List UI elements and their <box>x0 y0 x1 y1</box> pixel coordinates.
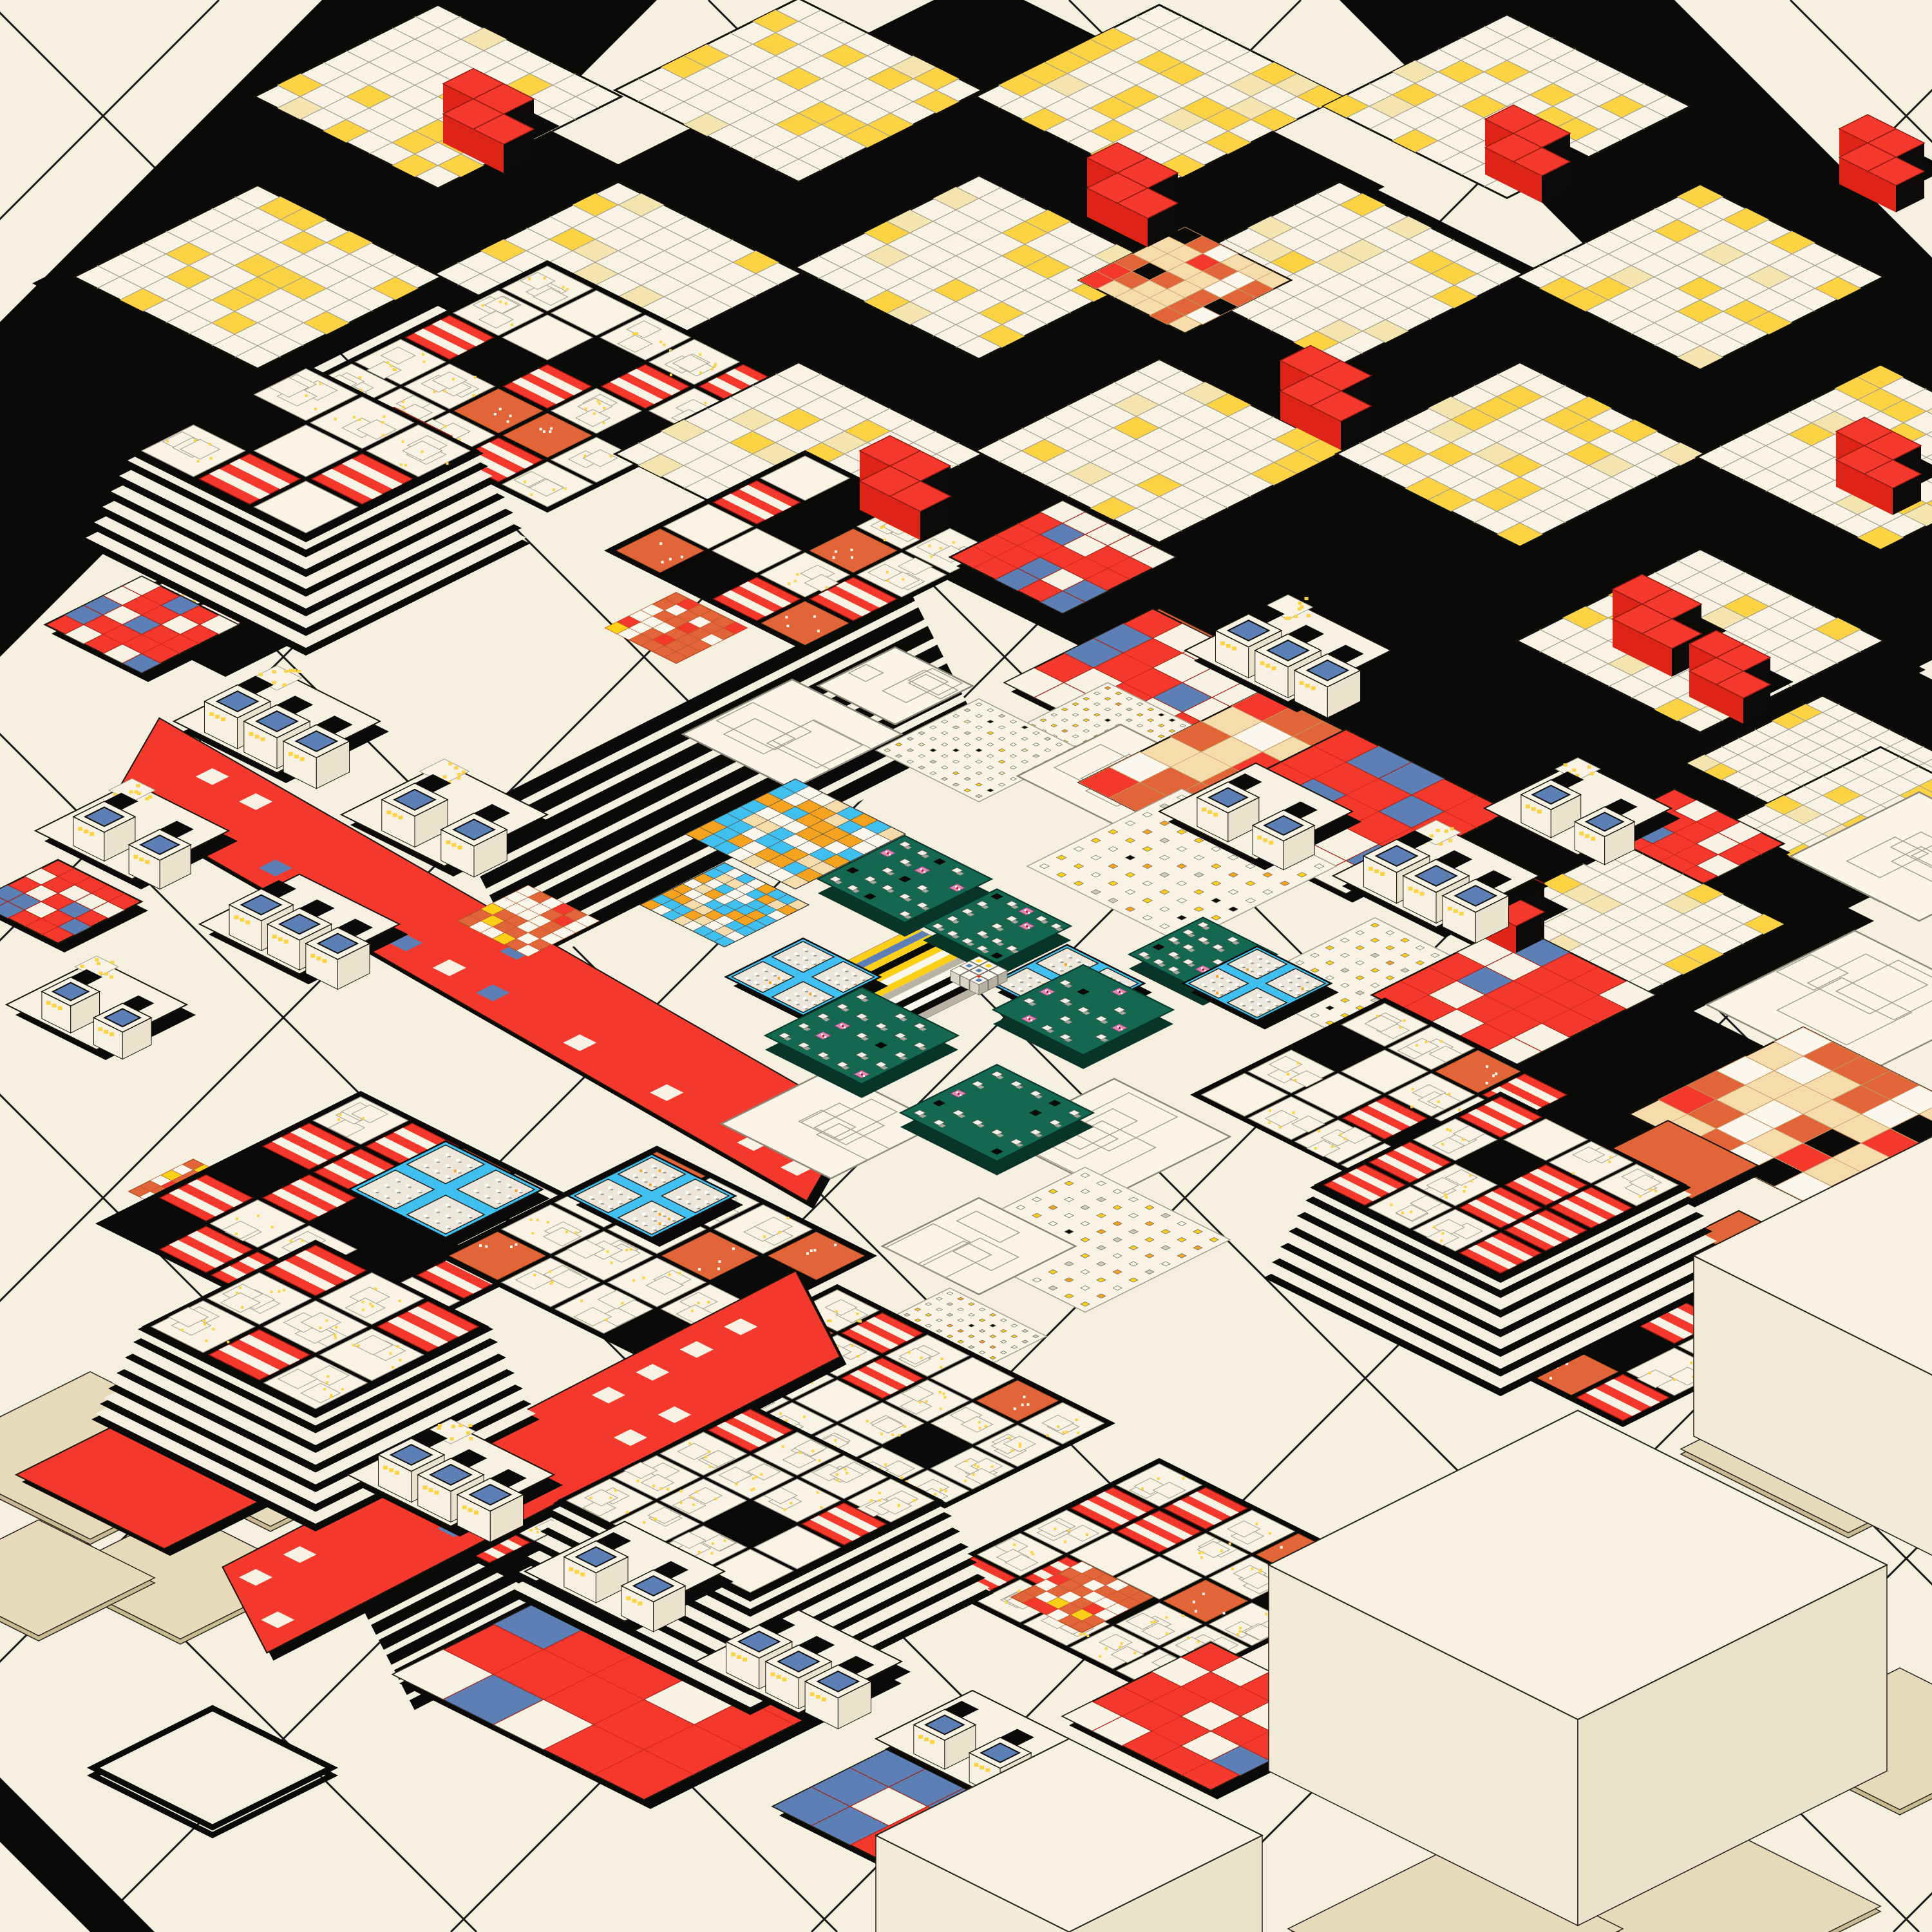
artwork-stage <box>0 0 1932 1932</box>
isometric-city-artwork <box>0 0 1932 1932</box>
